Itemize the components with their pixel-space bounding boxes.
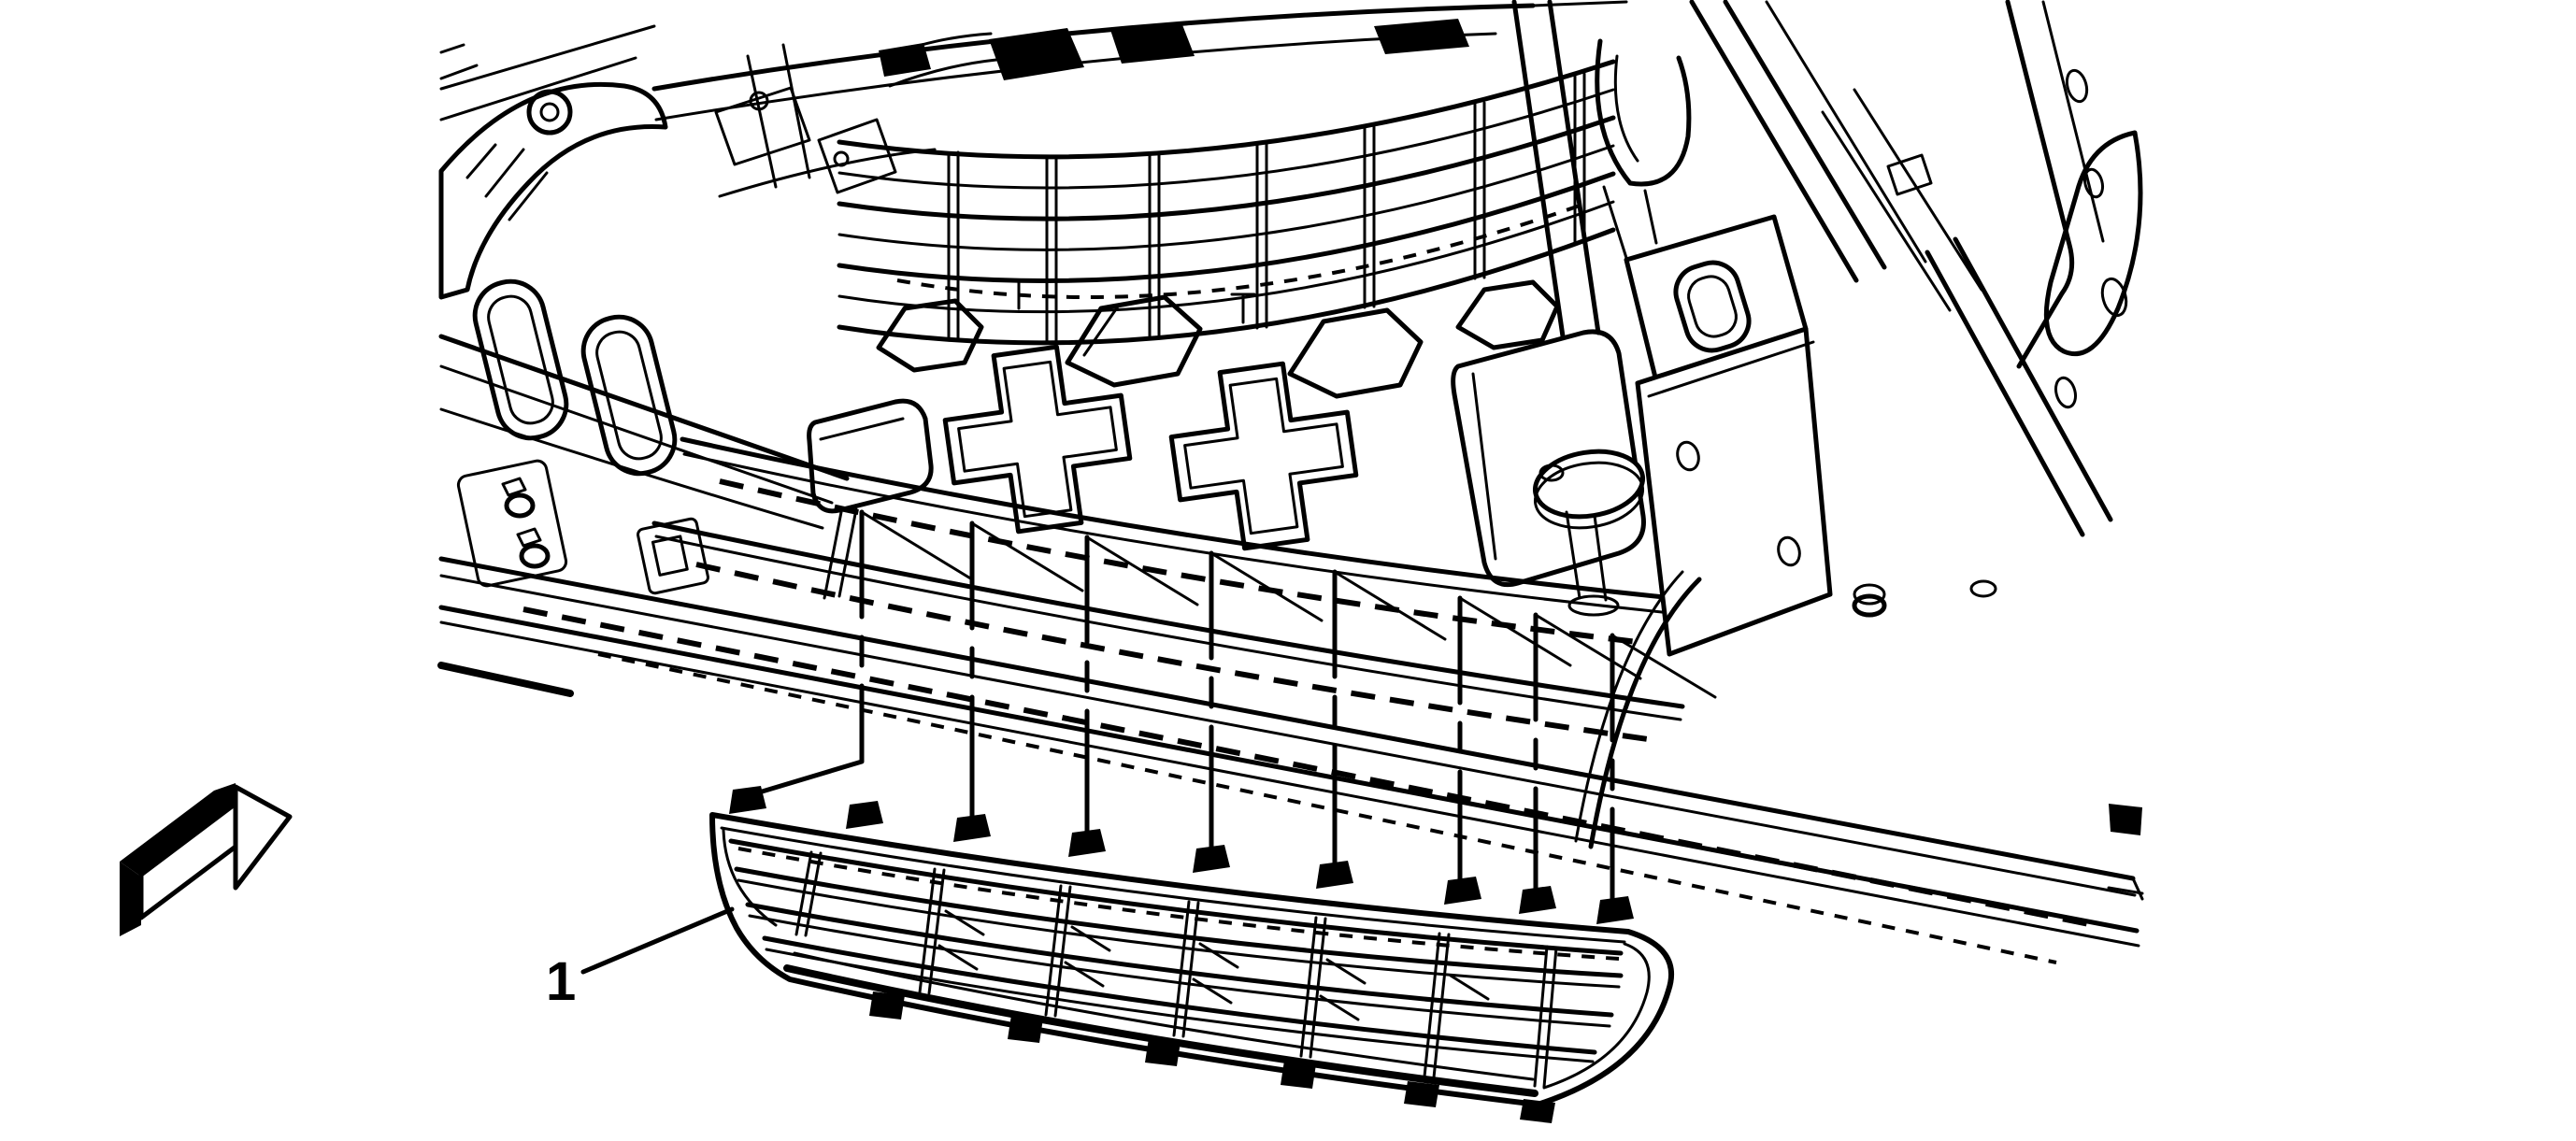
bracket-plate-assembly (1530, 217, 1996, 847)
energy-absorber-blocks (809, 280, 1644, 598)
fender-panel-lines (441, 26, 665, 297)
front-bumper-lower-grille (712, 786, 1671, 1123)
callout-1: 1 (546, 909, 732, 1012)
technical-illustration: 1 (0, 0, 2576, 1141)
staple-hoops-and-hardware (457, 275, 709, 594)
callout-number: 1 (546, 951, 576, 1012)
illustration-page: 1 (0, 0, 2576, 1141)
front-of-vehicle-arrow-icon (120, 783, 290, 936)
callout-leader-line (583, 909, 732, 972)
